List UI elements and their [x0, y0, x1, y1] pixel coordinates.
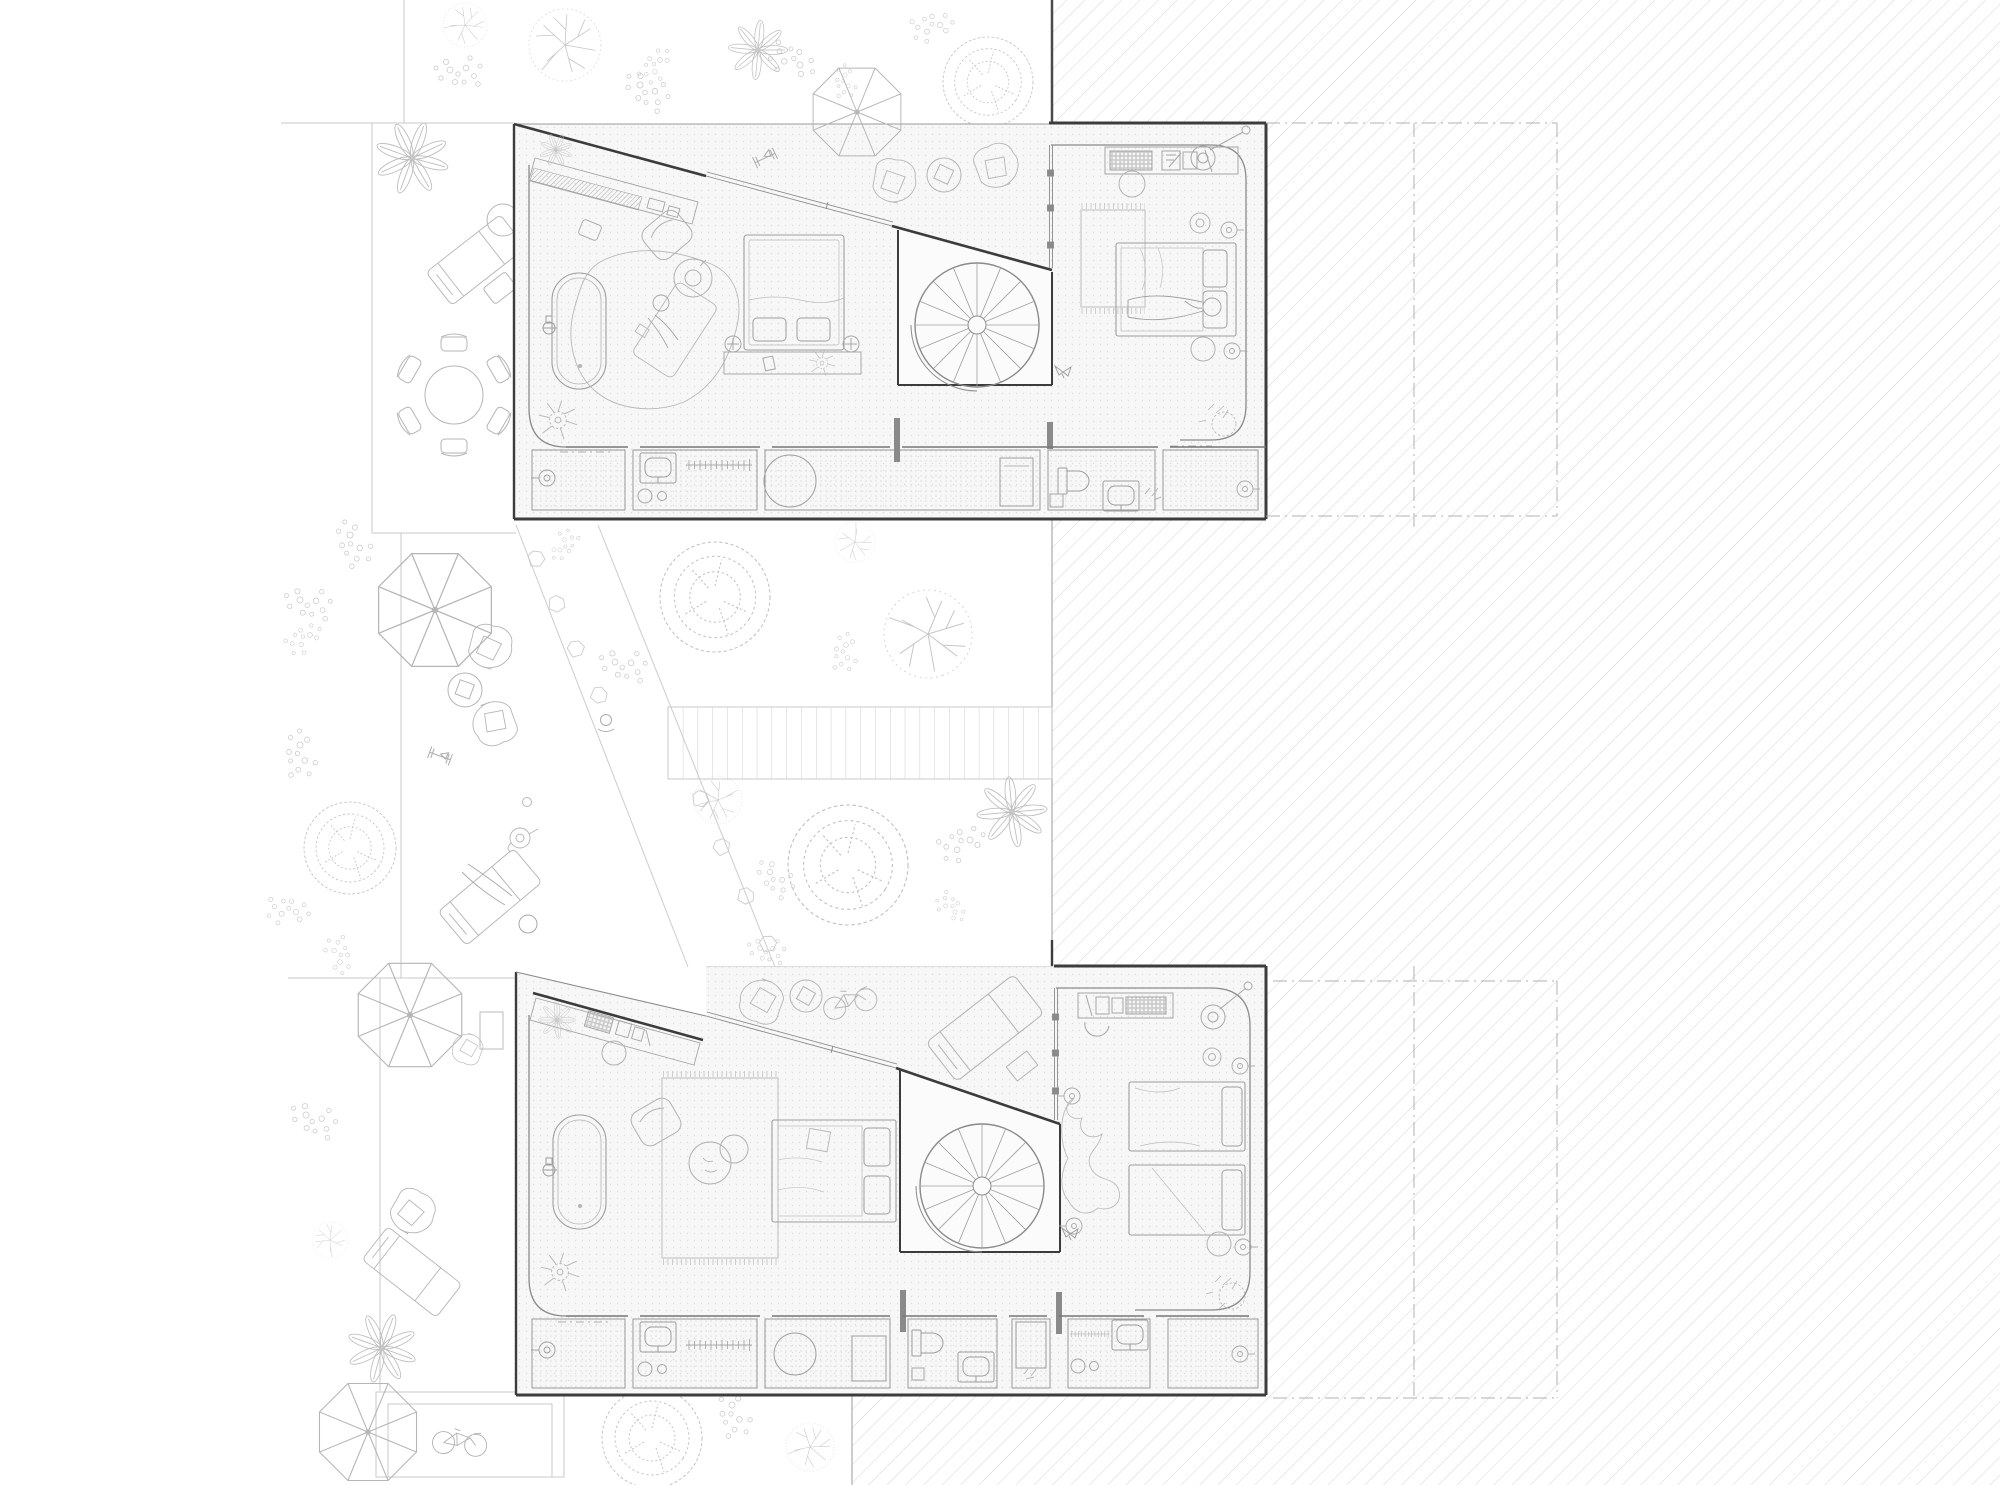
ball [523, 798, 532, 807]
watering-can [508, 828, 538, 852]
garden-table [448, 673, 482, 707]
tree-icon [303, 801, 397, 895]
floor-plan-canvas [0, 0, 2000, 1485]
lower-floor-plan [516, 935, 1266, 1395]
parasol-icon [379, 554, 492, 667]
tree-icon [601, 1387, 703, 1485]
wall-stub [1047, 422, 1053, 449]
tree-icon [872, 578, 985, 691]
tree-icon [787, 804, 910, 927]
tree-icon [659, 541, 772, 654]
tree-icon [942, 36, 1034, 128]
wall-stub [1056, 1292, 1062, 1334]
floor-plan-drawing [0, 0, 2000, 1485]
garden-dining-set [395, 334, 514, 456]
seated-person [598, 715, 614, 732]
palm-tree-icon [334, 1300, 431, 1397]
person-on-lounger [438, 848, 542, 945]
keyboard [1126, 997, 1166, 1014]
keyboard [1110, 151, 1152, 170]
wall-stub [900, 1290, 906, 1332]
parasol-icon [358, 963, 461, 1066]
palm-tree-icon [728, 20, 787, 80]
upper-floor-plan [514, 68, 1266, 519]
palm-tree-icon [366, 112, 457, 203]
parasol-icon [319, 1383, 416, 1480]
sun-lounger [362, 1227, 462, 1318]
tree-icon [529, 9, 601, 81]
shrub-cluster [434, 56, 482, 87]
stepping-stone-path [668, 707, 1052, 779]
bicycle-icon [430, 1424, 489, 1463]
wall-stub [894, 418, 900, 462]
garden-table [480, 1012, 503, 1049]
garden-path [516, 525, 1052, 967]
